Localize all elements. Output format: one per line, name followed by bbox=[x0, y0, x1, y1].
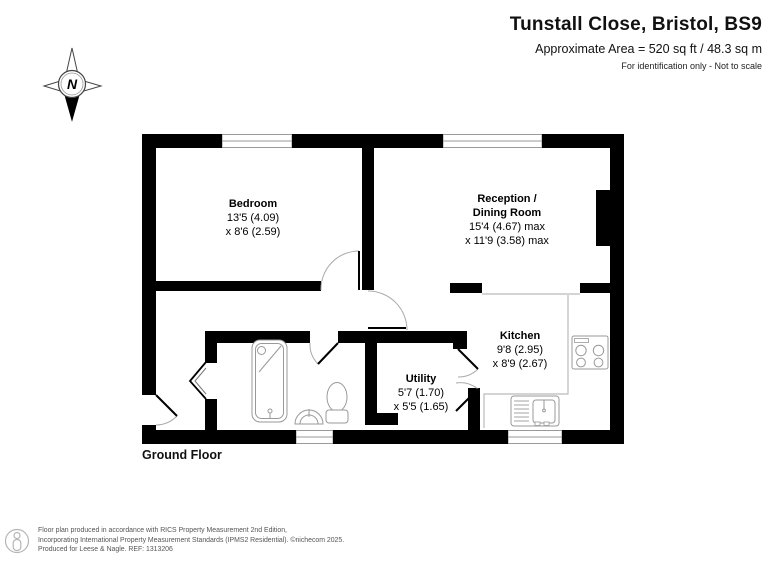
floorplan-page: Tunstall Close, Bristol, BS9 Approximate… bbox=[0, 0, 768, 576]
footer-line-2: Incorporating International Property Mea… bbox=[38, 536, 344, 546]
utility-dim2: x 5'5 (1.65) bbox=[361, 400, 481, 414]
footer-line-1: Floor plan produced in accordance with R… bbox=[38, 526, 344, 536]
kitchen-label: Kitchen 9'8 (2.95) x 8'9 (2.67) bbox=[450, 329, 590, 371]
person-badge-icon bbox=[4, 526, 31, 562]
reception-dim2: x 11'9 (3.58) max bbox=[427, 234, 587, 248]
kitchen-dim1: 9'8 (2.95) bbox=[450, 343, 590, 357]
reception-name-line2: Dining Room bbox=[427, 206, 587, 220]
utility-label: Utility 5'7 (1.70) x 5'5 (1.65) bbox=[361, 372, 481, 414]
utility-name: Utility bbox=[361, 372, 481, 386]
footer-text: Floor plan produced in accordance with R… bbox=[38, 526, 344, 555]
footer: Floor plan produced in accordance with R… bbox=[4, 526, 344, 562]
bathtub-icon bbox=[252, 340, 287, 422]
utility-dim1: 5'7 (1.70) bbox=[361, 386, 481, 400]
closet-bifold-door bbox=[190, 362, 206, 399]
bedroom-dim2: x 8'6 (2.59) bbox=[183, 225, 323, 239]
reception-label: Reception / Dining Room 15'4 (4.67) max … bbox=[427, 192, 587, 248]
kitchen-name: Kitchen bbox=[450, 329, 590, 343]
floor-plan bbox=[0, 0, 768, 576]
entrance-door-leaf bbox=[156, 395, 177, 416]
bedroom-dim1: 13'5 (4.09) bbox=[183, 211, 323, 225]
kitchen-dim2: x 8'9 (2.67) bbox=[450, 357, 590, 371]
footer-line-3: Produced for Leese & Nagle. REF: 1313206 bbox=[38, 545, 344, 555]
reception-name-line1: Reception / bbox=[427, 192, 587, 206]
bedroom-name: Bedroom bbox=[183, 197, 323, 211]
basin-icon bbox=[295, 409, 323, 424]
toilet-icon bbox=[326, 383, 348, 424]
bathroom-door-leaf bbox=[318, 343, 338, 364]
reception-dim1: 15'4 (4.67) max bbox=[427, 220, 587, 234]
floor-name-label: Ground Floor bbox=[142, 448, 222, 462]
bedroom-label: Bedroom 13'5 (4.09) x 8'6 (2.59) bbox=[183, 197, 323, 239]
kitchen-sink-icon bbox=[511, 396, 559, 426]
